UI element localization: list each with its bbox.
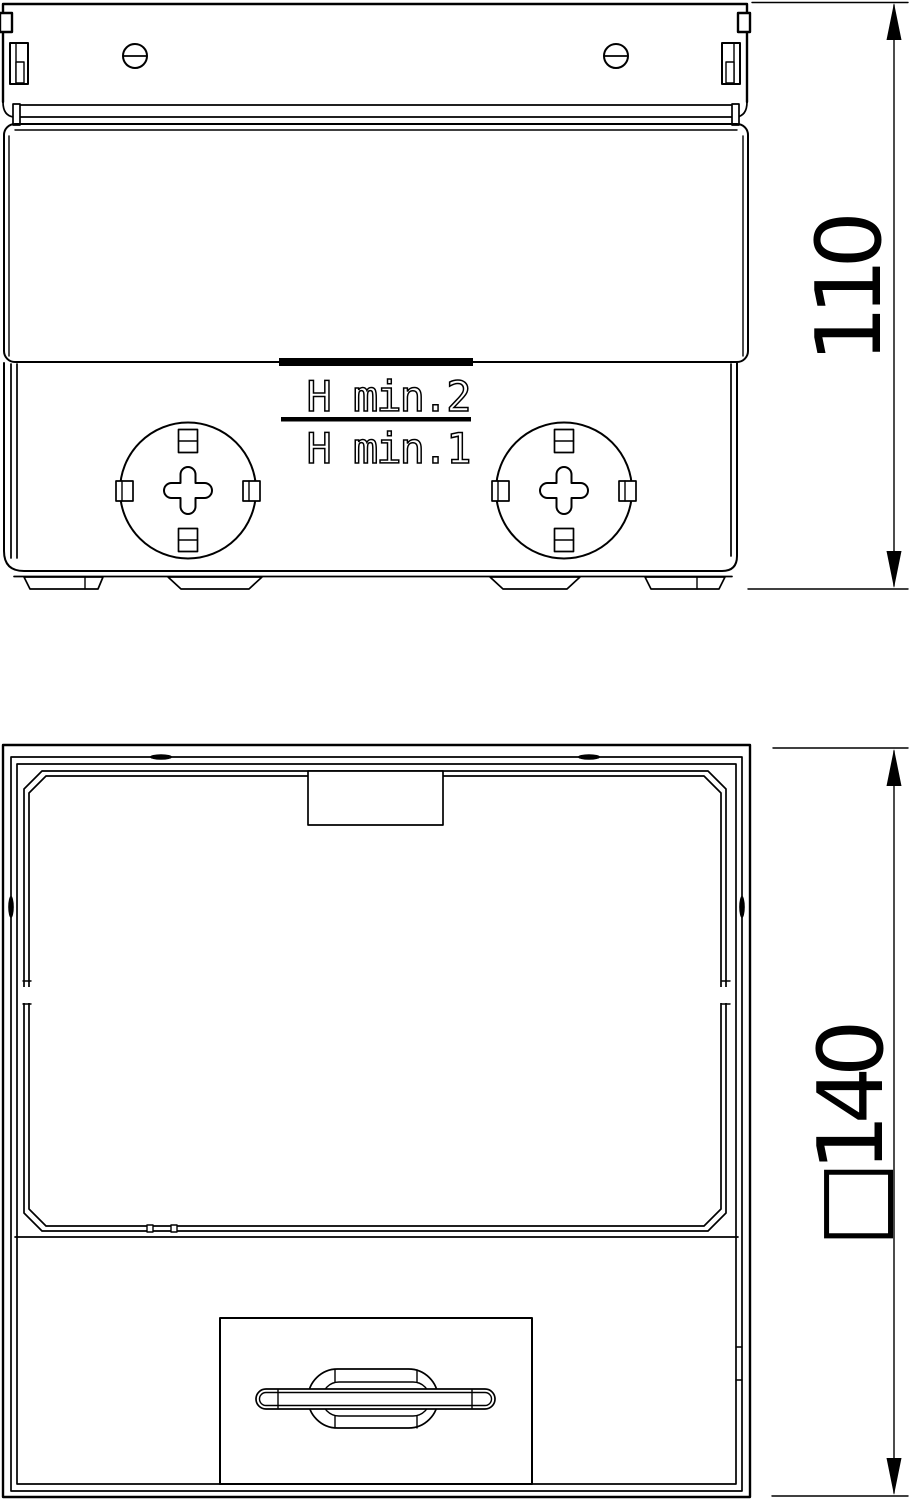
body-profile: H min.2 H min.1 bbox=[4, 358, 737, 589]
screw-slot-right-icon bbox=[604, 44, 628, 68]
clip-tab-right-icon bbox=[738, 13, 750, 32]
clip-tab-left-icon bbox=[0, 13, 12, 32]
knockout-left-east-tab bbox=[243, 481, 260, 501]
dim110-arrow-up-icon bbox=[887, 3, 902, 40]
plan-view bbox=[3, 745, 750, 1497]
latch-right-icon bbox=[722, 43, 740, 84]
dim110-value: 110 bbox=[797, 216, 902, 363]
dim110-arrow-down-icon bbox=[887, 551, 902, 588]
opening-inner bbox=[29, 776, 721, 1226]
hinge-knuckle-left bbox=[13, 104, 20, 125]
knockout-right-east-tab bbox=[619, 481, 636, 501]
foot-4 bbox=[645, 577, 725, 589]
latch-right-inner bbox=[726, 62, 734, 83]
frame-band bbox=[0, 4, 750, 125]
latch-left-inner bbox=[16, 62, 24, 83]
opening-bottom-tick-2 bbox=[171, 1225, 177, 1232]
frame-band-outline bbox=[3, 4, 747, 102]
marking-top-bar bbox=[279, 358, 473, 366]
dim140-value: □140 bbox=[799, 1025, 904, 1247]
marking-label-bottom: H min.1 bbox=[306, 424, 469, 473]
hinge-knuckle-right bbox=[732, 104, 739, 125]
pivot-mark-right-icon bbox=[739, 896, 745, 918]
marking-plate: H min.2 H min.1 bbox=[279, 358, 473, 473]
knockout-right bbox=[492, 423, 636, 559]
knockout-right-west-tab bbox=[492, 481, 509, 501]
knockout-left bbox=[116, 423, 260, 559]
opening-left-joint-gap bbox=[20, 987, 33, 1003]
dimension-110: 110 bbox=[748, 3, 908, 590]
side-view: H min.2 H min.1 bbox=[0, 4, 750, 589]
mounting-opening bbox=[15, 771, 742, 1380]
pivot-mark-left-icon bbox=[8, 896, 14, 918]
hinge-mark-top-left-icon bbox=[150, 754, 172, 760]
knockout-left-west-tab bbox=[116, 481, 133, 501]
dimension-140: □140 bbox=[772, 748, 908, 1496]
lid-tab bbox=[308, 771, 443, 825]
marking-label-top: H min.2 bbox=[306, 372, 469, 421]
foot-1 bbox=[24, 577, 103, 589]
drawing-canvas: H min.2 H min.1 bbox=[0, 0, 914, 1500]
foot-3 bbox=[490, 577, 580, 589]
frame-right-joint-ticks bbox=[736, 1347, 742, 1380]
opening-bottom-tick-1 bbox=[147, 1225, 153, 1232]
opening-outer bbox=[24, 771, 726, 1231]
latch-left-icon bbox=[10, 43, 28, 84]
body-feet bbox=[24, 577, 725, 589]
handle-assembly bbox=[220, 1318, 532, 1484]
technical-drawing: H min.2 H min.1 bbox=[0, 0, 914, 1500]
hinge-mark-top-right-icon bbox=[578, 754, 600, 760]
cover-profile bbox=[4, 124, 748, 362]
screw-slot-left-icon bbox=[123, 44, 147, 68]
dim140-arrow-up-icon bbox=[887, 749, 902, 786]
foot-2 bbox=[168, 577, 262, 589]
cover-outline bbox=[4, 124, 748, 362]
dim140-arrow-down-icon bbox=[887, 1458, 902, 1495]
opening-right-joint-gap bbox=[720, 987, 733, 1003]
